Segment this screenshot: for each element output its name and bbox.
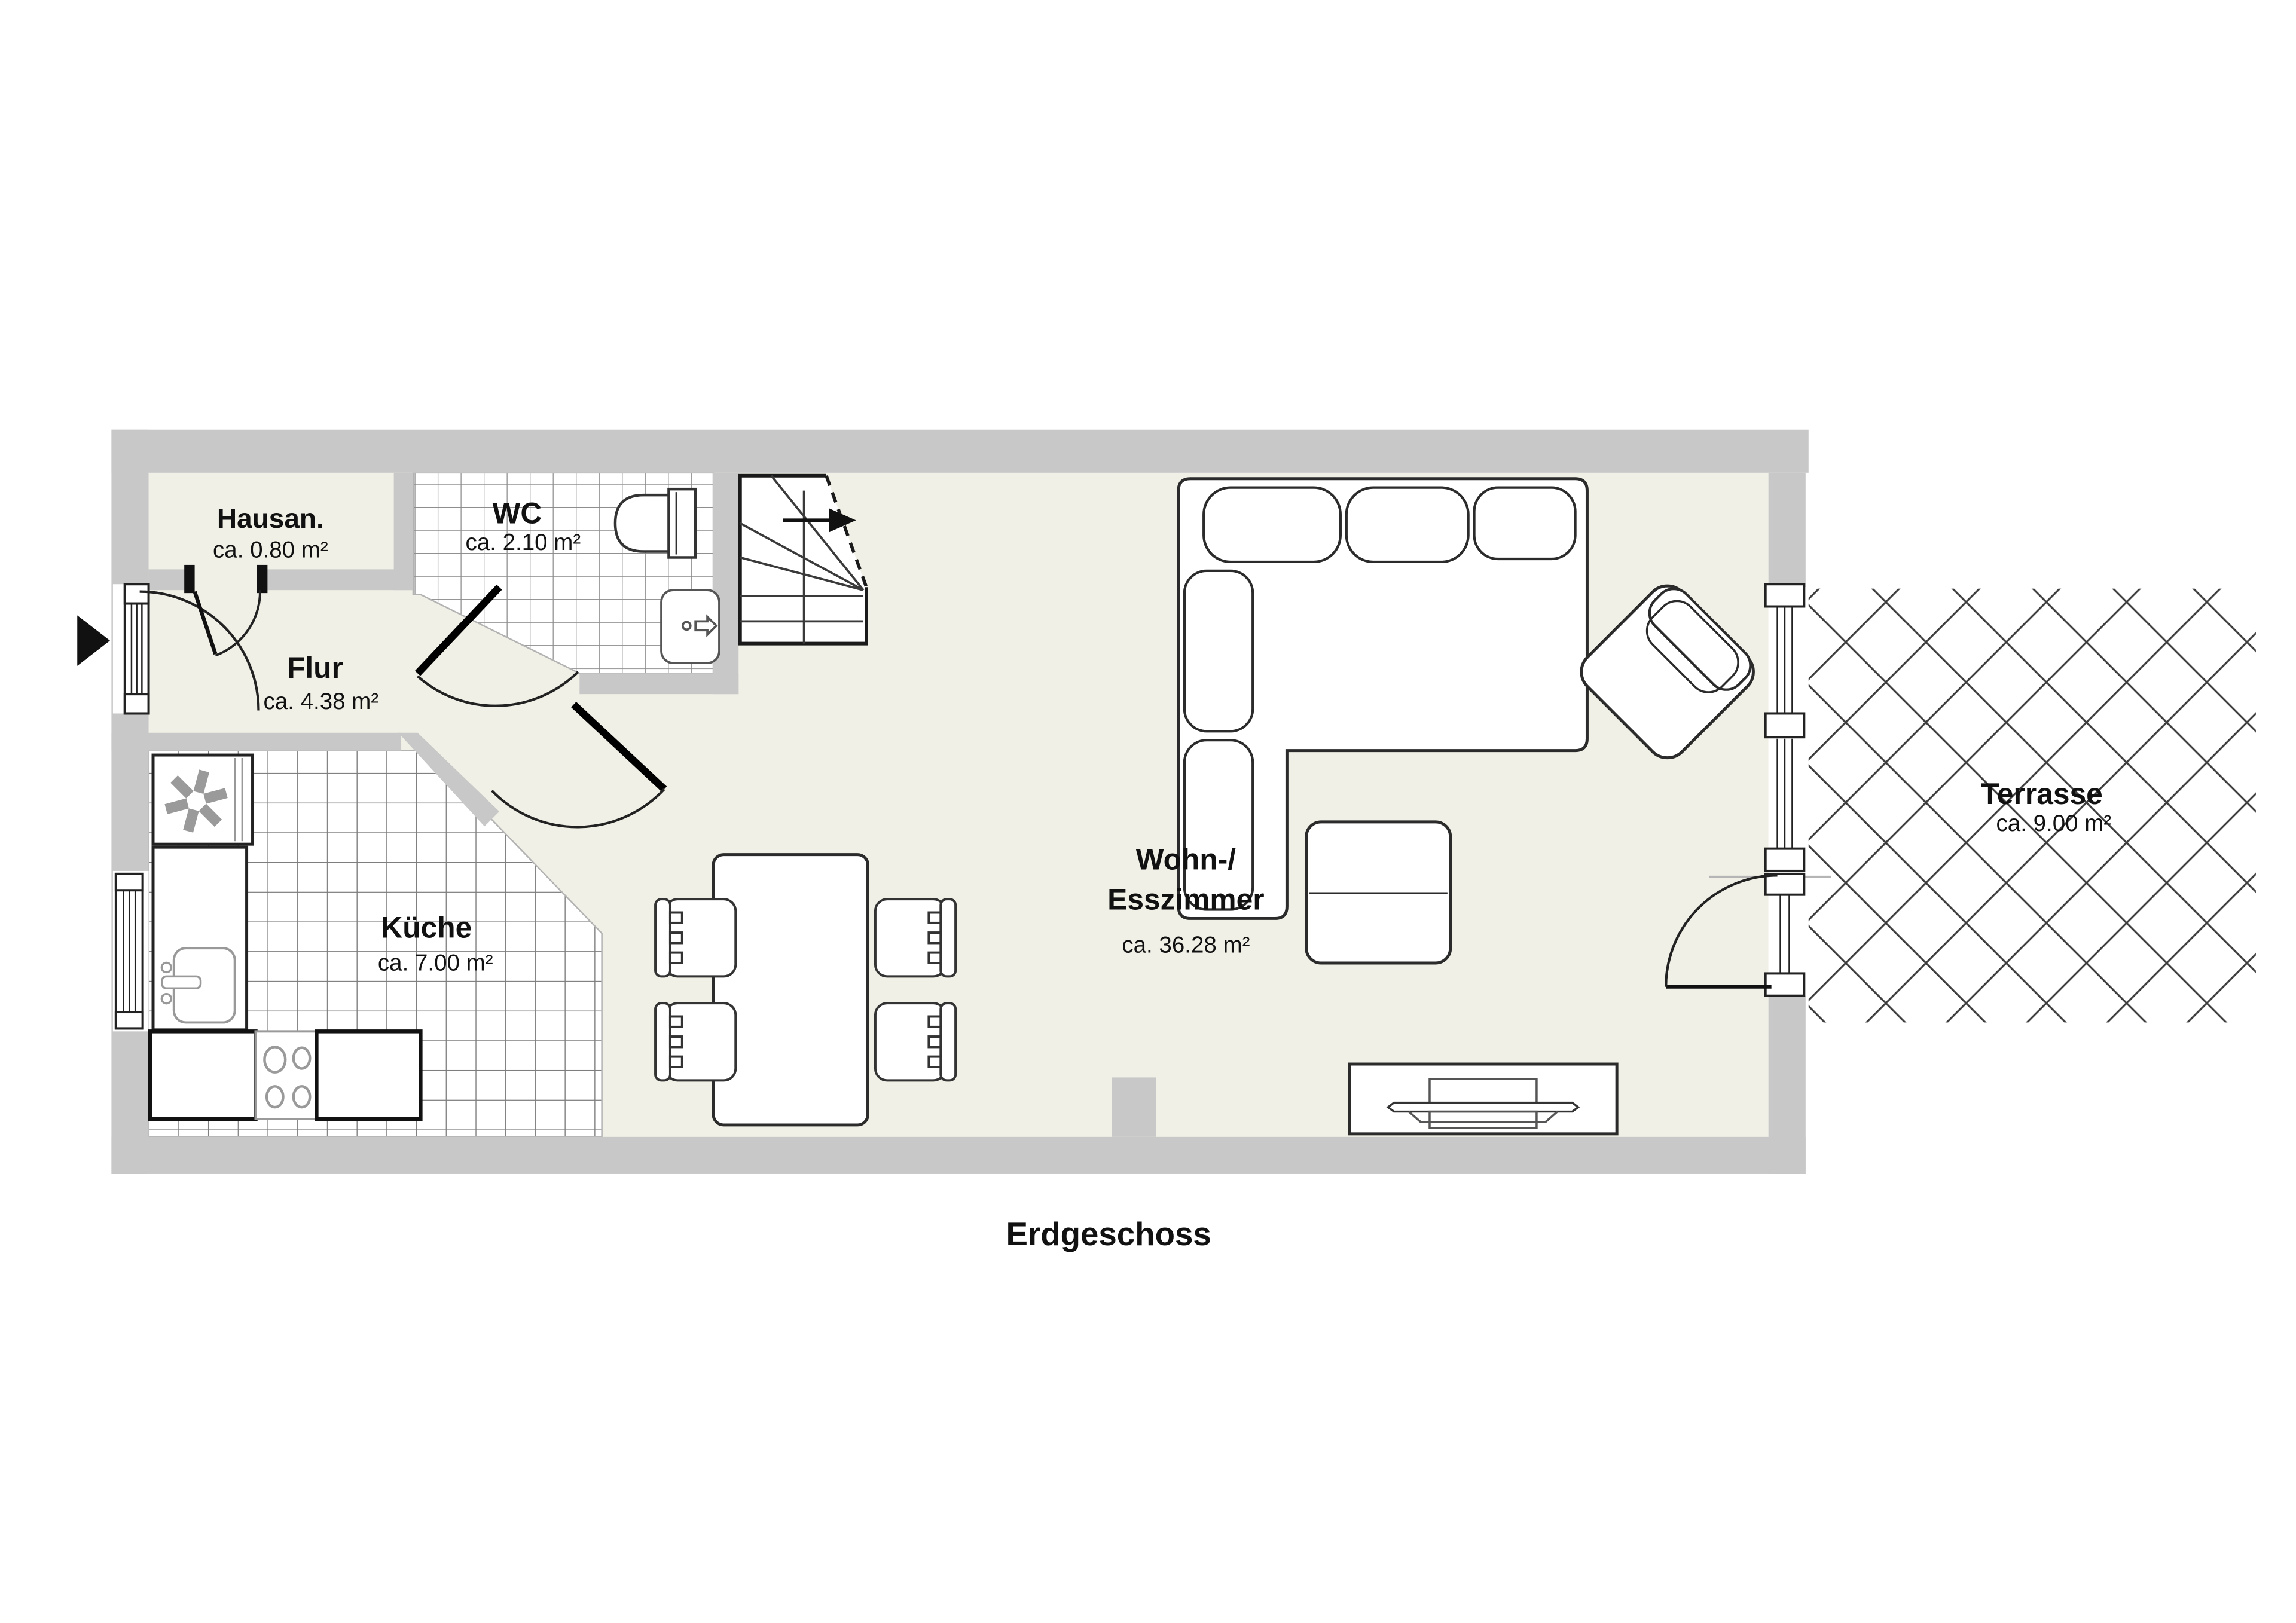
dining-chair: [655, 1003, 735, 1080]
room-name-line1: Wohn-/: [1136, 842, 1236, 876]
sofa-back-cushion: [1474, 488, 1576, 559]
room-name-line2: Esszimmer: [1107, 883, 1264, 916]
room-area: ca. 7.00 m²: [378, 950, 493, 976]
kitchen-window: [116, 874, 143, 1028]
room-name: Hausan.: [217, 503, 324, 534]
ottoman: [1306, 822, 1451, 963]
tv-screen: [1388, 1103, 1578, 1112]
room-area: ca. 2.10 m²: [466, 530, 581, 555]
wall-bottom: [111, 1137, 1805, 1174]
tv-icon: [1430, 1079, 1537, 1104]
wall-left: [111, 430, 148, 1174]
room-name: Terrasse: [1981, 777, 2103, 811]
wall-kitchen-top: [111, 733, 401, 751]
cooktop: [255, 1031, 316, 1119]
wall-right-lower: [1769, 996, 1806, 1174]
sofa-back-cushion: [1204, 488, 1341, 562]
floor-title: Erdgeschoss: [1006, 1216, 1211, 1252]
wall-hausan-wc-divider: [394, 473, 413, 590]
dining-table: [713, 855, 868, 1125]
wall-stub-living: [1112, 1077, 1156, 1136]
wall-right-upper: [1769, 473, 1806, 587]
room-area: ca. 36.28 m²: [1122, 933, 1250, 958]
wall-wc-stairs-divider: [713, 473, 738, 694]
sofa-back-cushion: [1347, 488, 1468, 562]
room-area: ca. 9.00 m²: [1996, 811, 2112, 836]
label-hausan: Hausan. ca. 0.80 m²: [213, 503, 328, 563]
wall-hausan-bottom: [260, 569, 413, 590]
entrance-arrow-icon: [77, 615, 110, 666]
ventilation-unit: [153, 755, 253, 844]
dining-chair: [655, 899, 735, 976]
floor-plan-drawing: Hausan. ca. 0.80 m² WC ca. 2.10 m² Flur …: [0, 0, 2296, 1623]
floor-plan-page: Hausan. ca. 0.80 m² WC ca. 2.10 m² Flur …: [0, 0, 2296, 1623]
tv-sideboard: [1349, 1064, 1617, 1134]
kitchen-counter-right: [316, 1031, 420, 1119]
room-area: ca. 4.38 m²: [264, 689, 379, 714]
room-area: ca. 0.80 m²: [213, 537, 328, 563]
wall-top: [111, 430, 1808, 473]
room-name: WC: [493, 496, 542, 530]
toilet: [615, 489, 695, 557]
room-name: Flur: [287, 651, 343, 684]
room-name: Küche: [381, 911, 472, 945]
hausan-door-jamb-right: [257, 565, 267, 593]
kitchen-sink-unit: [153, 847, 247, 1030]
kitchen-counter-left: [150, 1031, 255, 1119]
hausan-door-jamb-left: [184, 565, 194, 593]
sofa-side-cushion: [1184, 571, 1253, 731]
washbasin: [661, 590, 719, 663]
dining-chair: [875, 899, 955, 976]
dining-chair: [875, 1003, 955, 1080]
label-terrasse: Terrasse ca. 9.00 m²: [1981, 777, 2111, 836]
